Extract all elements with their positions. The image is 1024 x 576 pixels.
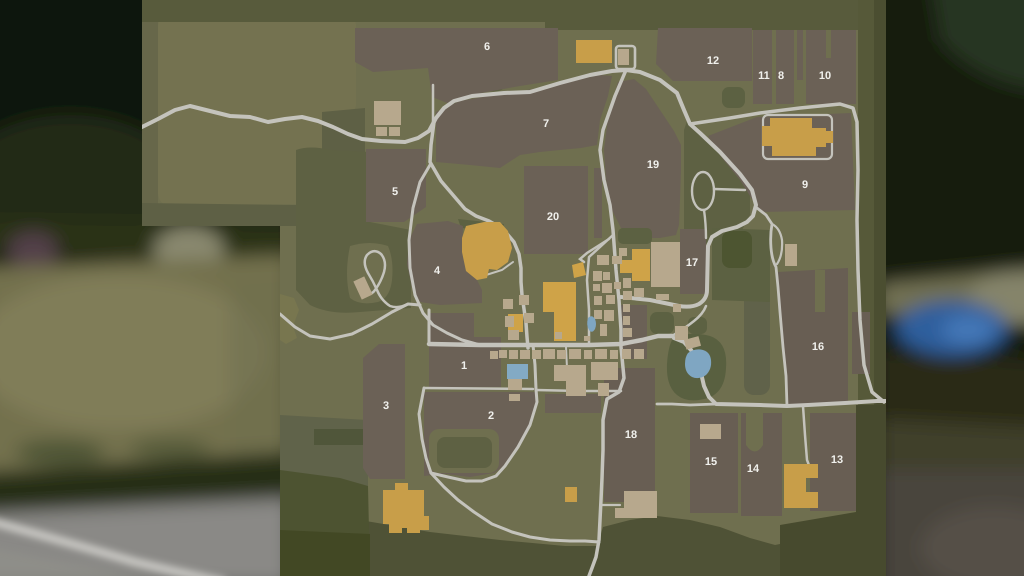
svg-text:12: 12 (707, 55, 719, 67)
svg-text:13: 13 (831, 454, 843, 466)
svg-text:1: 1 (461, 360, 467, 372)
svg-text:6: 6 (484, 41, 490, 53)
svg-text:10: 10 (819, 70, 831, 82)
svg-text:19: 19 (647, 159, 659, 171)
svg-text:4: 4 (434, 265, 441, 277)
svg-text:9: 9 (802, 179, 808, 191)
svg-text:17: 17 (686, 257, 698, 269)
svg-text:15: 15 (705, 456, 717, 468)
svg-text:3: 3 (383, 400, 389, 412)
svg-text:2: 2 (488, 410, 494, 422)
svg-text:16: 16 (812, 341, 824, 353)
svg-text:18: 18 (625, 429, 637, 441)
svg-text:20: 20 (547, 211, 559, 223)
svg-text:14: 14 (747, 463, 760, 475)
svg-text:11: 11 (758, 70, 770, 82)
svg-text:5: 5 (392, 186, 398, 198)
svg-text:8: 8 (778, 70, 784, 82)
svg-text:7: 7 (543, 118, 549, 130)
